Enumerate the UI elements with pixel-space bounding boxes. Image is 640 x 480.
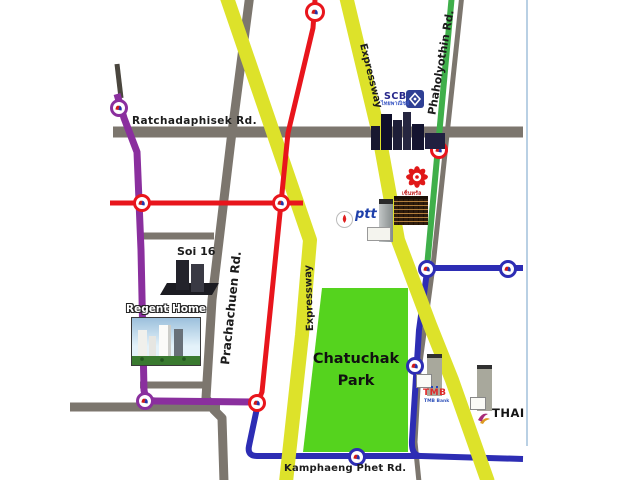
road-stub-topleft <box>117 64 121 98</box>
soi16-building <box>176 260 189 290</box>
station-icon <box>408 359 423 374</box>
scb-tower <box>371 126 380 150</box>
tmb-label: TMB <box>423 389 446 398</box>
soi16-building <box>191 264 204 292</box>
map-canvas <box>0 0 640 480</box>
photo-building <box>138 330 147 356</box>
red-flower-logo-icon <box>405 164 429 191</box>
road-label-kamphaeng-phet: Kamphaeng Phet Rd. <box>284 464 406 474</box>
station-icon <box>501 262 516 277</box>
regent-home-label: Regent Home <box>126 304 206 315</box>
thai-airways-label: THAI <box>492 408 525 420</box>
road-label-soi16: Soi 16 <box>177 246 215 257</box>
thai-airways-logo-icon <box>477 410 491 424</box>
station-icon <box>250 396 265 411</box>
park-label-line2: Park <box>303 374 409 389</box>
bangkok-chatuchak-map: Ratchadaphisek Rd. Soi 16 Prachachuen Rd… <box>0 0 640 480</box>
ptt-logo-icon <box>336 211 353 228</box>
soi16-building-platform <box>160 283 219 295</box>
tmb-base-building <box>416 374 432 388</box>
chatuchak-park-label: Chatuchak Park <box>303 352 409 388</box>
station-icon <box>135 196 150 211</box>
photo-trees <box>132 356 200 365</box>
brown-office-building <box>394 196 428 225</box>
photo-building <box>149 336 156 356</box>
station-icon <box>138 394 153 409</box>
scb-tower <box>425 133 445 149</box>
scb-tower <box>393 120 402 150</box>
scb-tower <box>403 112 411 150</box>
ptt-base-building <box>367 227 391 241</box>
red-flower-thai-label: เซ็นทรัล <box>402 192 421 198</box>
scb-tower <box>412 124 424 150</box>
station-icon <box>274 196 289 211</box>
map-right-border <box>526 0 528 446</box>
regent-home-photo <box>131 317 201 366</box>
ptt-label: ptt <box>355 208 377 221</box>
road-label-ratchadaphisek: Ratchadaphisek Rd. <box>132 116 257 127</box>
photo-building <box>174 329 183 356</box>
station-icon <box>112 101 127 116</box>
tmb-sub-label: TMB Bank <box>424 400 449 405</box>
scb-tower <box>381 114 392 150</box>
park-label-line1: Chatuchak <box>303 352 409 367</box>
photo-building <box>159 325 171 356</box>
thai-base-building <box>470 397 486 410</box>
scb-thai-label: ไทยพาณิชย์ <box>381 102 409 108</box>
station-icon <box>420 262 435 277</box>
station-icon <box>307 4 324 21</box>
